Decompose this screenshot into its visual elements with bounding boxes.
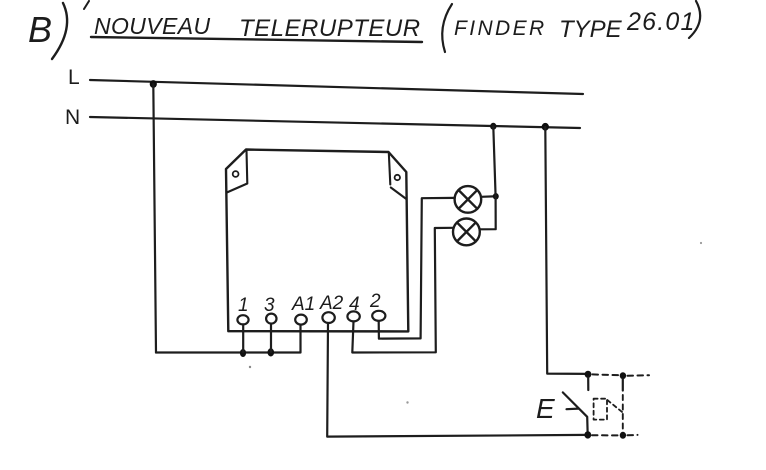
svg-text:1: 1 [238,295,249,316]
svg-text:A1: A1 [291,294,315,315]
svg-text:TELERUPTEUR: TELERUPTEUR [239,15,421,42]
svg-text:2: 2 [369,291,381,312]
svg-text:TYPE: TYPE [559,16,623,43]
svg-text:E: E [536,393,555,424]
svg-text:FINDER: FINDER [454,17,547,40]
svg-text:B: B [28,9,52,50]
svg-text:N: N [65,106,80,129]
svg-text:NOUVEAU: NOUVEAU [94,13,211,39]
svg-text:26.01: 26.01 [626,8,696,36]
svg-text:A2: A2 [319,293,344,314]
svg-text:L: L [68,66,80,89]
